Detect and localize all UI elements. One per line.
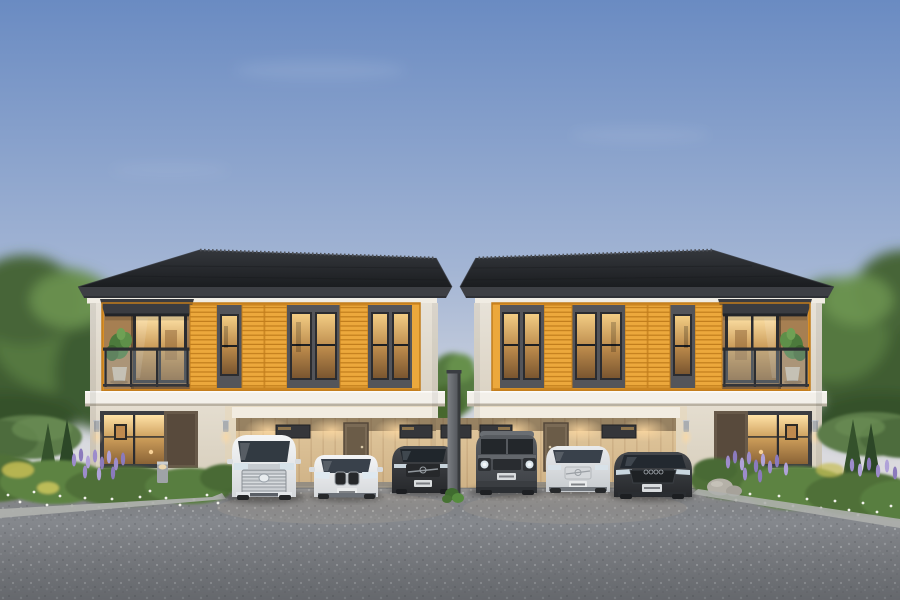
- grille: [406, 464, 440, 477]
- grille: [565, 467, 591, 479]
- headlight: [234, 463, 250, 470]
- bollard-light: [157, 462, 168, 484]
- wheel: [279, 495, 291, 500]
- wheel: [318, 494, 329, 499]
- license-plate: [569, 481, 587, 488]
- wheel: [620, 494, 632, 499]
- side-mirror: [309, 467, 315, 472]
- car-sports-sedan-dark: [608, 452, 696, 501]
- wheel: [672, 494, 684, 499]
- headlight: [548, 465, 561, 470]
- license-plate: [414, 480, 432, 487]
- wheel: [522, 490, 534, 495]
- wheel: [595, 488, 606, 493]
- headlight: [315, 472, 330, 479]
- headlight: [478, 458, 491, 471]
- wheel: [550, 488, 561, 493]
- grille: [493, 459, 521, 470]
- headlight: [362, 472, 377, 479]
- singleframe-grille: [630, 470, 676, 483]
- headlight: [523, 458, 536, 471]
- windshield: [481, 439, 533, 454]
- headlight: [595, 465, 608, 470]
- license-plate: [642, 484, 662, 492]
- car-crossover-white: [543, 446, 613, 495]
- wheel: [396, 489, 407, 494]
- headlight: [394, 464, 407, 468]
- car-compact-suv-white: [309, 455, 383, 502]
- license-plate: [497, 473, 516, 480]
- side-mirror: [377, 467, 383, 472]
- car-mpv-white: [222, 435, 306, 503]
- wheel: [364, 494, 375, 499]
- chrome-grille: [242, 470, 286, 494]
- wheel: [237, 495, 249, 500]
- wheel: [480, 490, 492, 495]
- architectural-render: [0, 0, 900, 600]
- car-offroad-suv-grey: [468, 431, 544, 498]
- side-mirror: [295, 459, 301, 464]
- side-mirror: [227, 459, 233, 464]
- headlight: [278, 463, 294, 470]
